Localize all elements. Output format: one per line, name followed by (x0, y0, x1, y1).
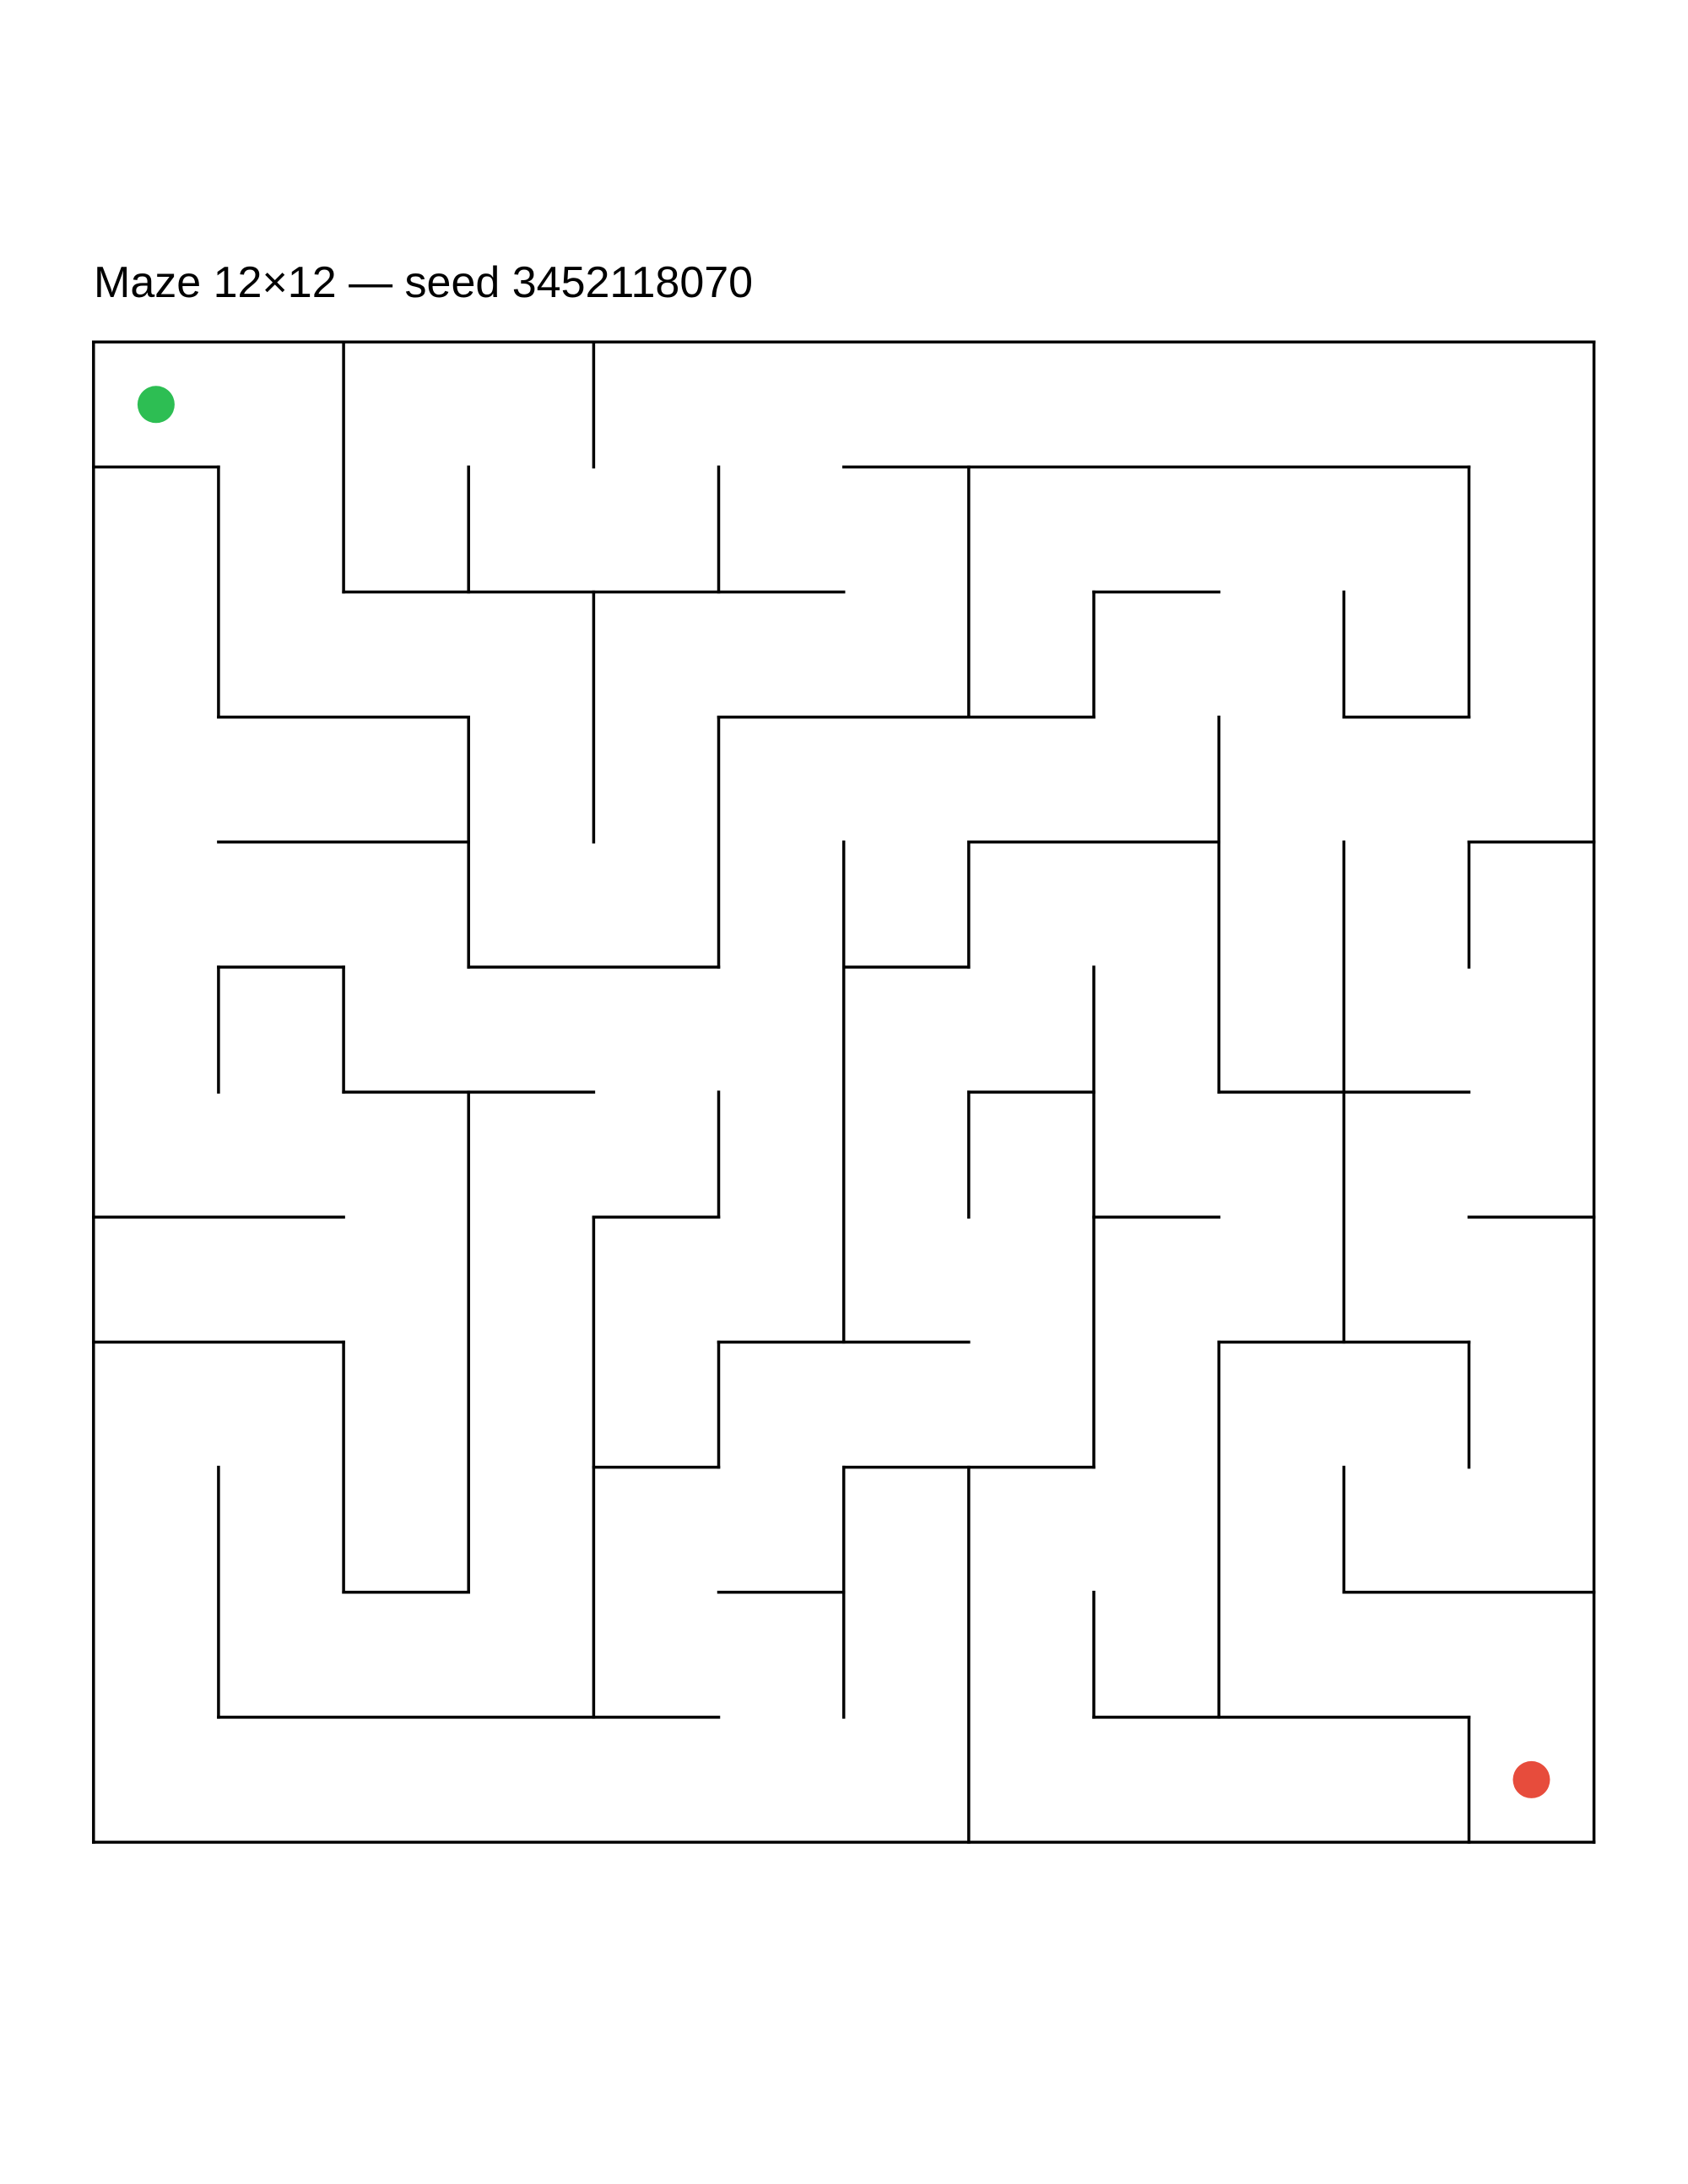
svg-text:Maze 12×12 — seed 3452118070: Maze 12×12 — seed 3452118070 (94, 258, 753, 307)
